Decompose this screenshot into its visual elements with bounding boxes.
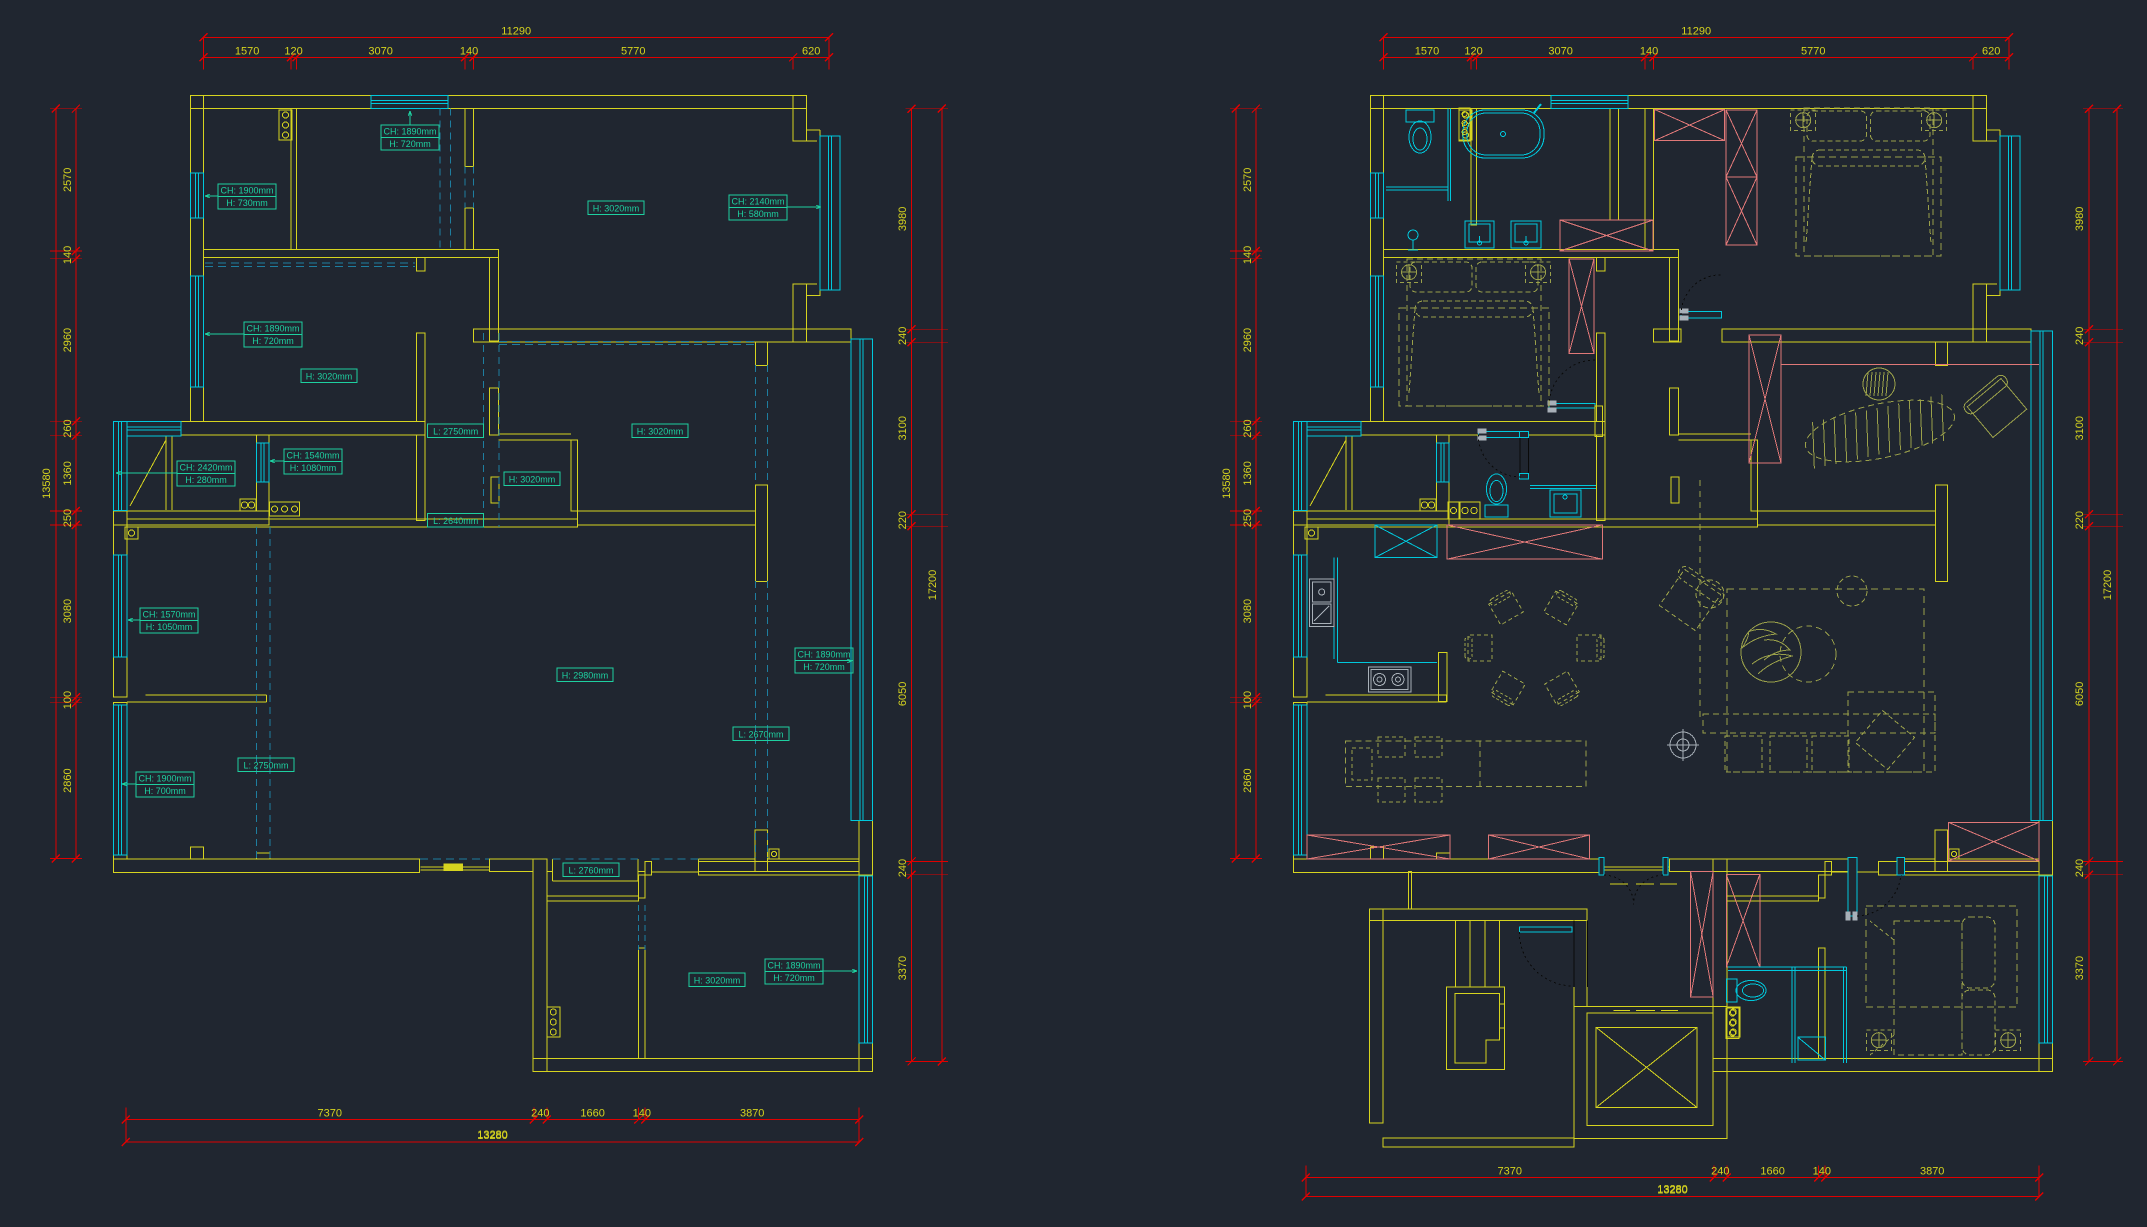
svg-text:620: 620	[802, 45, 820, 57]
svg-text:3080: 3080	[62, 599, 74, 623]
svg-text:120: 120	[1464, 45, 1482, 57]
svg-text:1570: 1570	[235, 45, 259, 57]
svg-text:140: 140	[1813, 1166, 1831, 1178]
svg-text:240: 240	[897, 327, 909, 345]
svg-text:H: 730mm: H: 730mm	[226, 198, 268, 208]
svg-text:CH: 2420mm: CH: 2420mm	[179, 462, 232, 472]
svg-text:7370: 7370	[1498, 1166, 1522, 1178]
svg-text:H: 1050mm: H: 1050mm	[146, 622, 193, 632]
svg-text:3370: 3370	[2074, 956, 2086, 980]
svg-text:140: 140	[1640, 45, 1658, 57]
svg-text:L: 2760mm: L: 2760mm	[568, 865, 613, 875]
svg-text:17200: 17200	[927, 570, 939, 601]
svg-text:H: 3020mm: H: 3020mm	[593, 203, 640, 213]
svg-text:H: 720mm: H: 720mm	[252, 336, 294, 346]
svg-text:H: 3020mm: H: 3020mm	[637, 426, 684, 436]
svg-text:11290: 11290	[1681, 25, 1711, 37]
svg-text:220: 220	[2074, 511, 2086, 529]
svg-text:L: 2640mm: L: 2640mm	[433, 516, 478, 526]
svg-text:3870: 3870	[740, 1108, 764, 1120]
svg-text:140: 140	[1242, 246, 1254, 264]
svg-text:240: 240	[531, 1108, 549, 1120]
svg-text:120: 120	[284, 45, 302, 57]
svg-text:1660: 1660	[1760, 1166, 1784, 1178]
svg-text:250: 250	[62, 509, 74, 527]
svg-text:2570: 2570	[62, 168, 74, 192]
svg-text:1360: 1360	[62, 461, 74, 485]
svg-text:H: 3020mm: H: 3020mm	[306, 371, 353, 381]
svg-text:240: 240	[1711, 1166, 1729, 1178]
svg-text:CH: 1890mm: CH: 1890mm	[246, 323, 299, 333]
svg-text:240: 240	[2074, 327, 2086, 345]
svg-text:2860: 2860	[1242, 768, 1254, 792]
svg-text:100: 100	[62, 691, 74, 709]
svg-text:CH: 1890mm: CH: 1890mm	[797, 649, 850, 659]
svg-text:3980: 3980	[897, 207, 909, 231]
svg-text:6050: 6050	[2074, 682, 2086, 706]
svg-text:CH: 1890mm: CH: 1890mm	[767, 960, 820, 970]
svg-text:620: 620	[1982, 45, 2000, 57]
svg-text:3100: 3100	[897, 416, 909, 440]
svg-text:3070: 3070	[368, 45, 392, 57]
svg-text:140: 140	[460, 45, 478, 57]
svg-text:CH: 1890mm: CH: 1890mm	[383, 126, 436, 136]
svg-text:2960: 2960	[62, 328, 74, 352]
svg-text:3980: 3980	[2074, 207, 2086, 231]
svg-text:11290: 11290	[501, 25, 531, 37]
svg-text:140: 140	[633, 1108, 651, 1120]
svg-text:H: 720mm: H: 720mm	[773, 973, 815, 983]
svg-text:H: 1080mm: H: 1080mm	[290, 463, 337, 473]
svg-text:H: 3020mm: H: 3020mm	[694, 975, 741, 985]
svg-text:13580: 13580	[1221, 468, 1233, 499]
svg-text:240: 240	[2074, 859, 2086, 877]
svg-text:L: 2750mm: L: 2750mm	[243, 760, 288, 770]
svg-text:13280: 13280	[1657, 1184, 1688, 1196]
svg-text:2570: 2570	[1242, 168, 1254, 192]
svg-text:3100: 3100	[2074, 416, 2086, 440]
svg-text:L: 2750mm: L: 2750mm	[433, 426, 478, 436]
svg-text:13280: 13280	[477, 1129, 508, 1141]
svg-text:5770: 5770	[1801, 45, 1825, 57]
svg-text:1570: 1570	[1415, 45, 1439, 57]
svg-text:H: 3020mm: H: 3020mm	[509, 474, 556, 484]
svg-text:CH: 1900mm: CH: 1900mm	[138, 773, 191, 783]
svg-text:3080: 3080	[1242, 599, 1254, 623]
svg-text:H: 580mm: H: 580mm	[737, 209, 779, 219]
svg-text:3870: 3870	[1920, 1166, 1944, 1178]
svg-text:CH: 1570mm: CH: 1570mm	[142, 609, 195, 619]
svg-text:250: 250	[1242, 509, 1254, 527]
svg-text:H: 2980mm: H: 2980mm	[562, 670, 609, 680]
svg-text:3370: 3370	[897, 956, 909, 980]
svg-text:1360: 1360	[1242, 461, 1254, 485]
svg-text:7370: 7370	[318, 1108, 342, 1120]
svg-text:100: 100	[1242, 691, 1254, 709]
svg-text:17200: 17200	[2102, 570, 2114, 601]
svg-text:CH: 1900mm: CH: 1900mm	[220, 185, 273, 195]
svg-text:H: 720mm: H: 720mm	[389, 139, 431, 149]
svg-text:H: 280mm: H: 280mm	[185, 475, 227, 485]
svg-text:5770: 5770	[621, 45, 645, 57]
svg-text:3070: 3070	[1548, 45, 1572, 57]
svg-text:2960: 2960	[1242, 328, 1254, 352]
svg-text:240: 240	[897, 859, 909, 877]
svg-text:H: 700mm: H: 700mm	[144, 786, 186, 796]
svg-text:L: 2670mm: L: 2670mm	[738, 729, 783, 739]
svg-text:CH: 1540mm: CH: 1540mm	[286, 450, 339, 460]
svg-text:220: 220	[897, 511, 909, 529]
svg-text:13580: 13580	[41, 468, 53, 499]
svg-text:140: 140	[62, 246, 74, 264]
svg-text:6050: 6050	[897, 682, 909, 706]
svg-text:2860: 2860	[62, 768, 74, 792]
svg-text:CH: 2140mm: CH: 2140mm	[731, 196, 784, 206]
svg-text:260: 260	[62, 419, 74, 437]
svg-text:260: 260	[1242, 419, 1254, 437]
svg-text:H: 720mm: H: 720mm	[803, 662, 845, 672]
svg-text:1660: 1660	[580, 1108, 604, 1120]
